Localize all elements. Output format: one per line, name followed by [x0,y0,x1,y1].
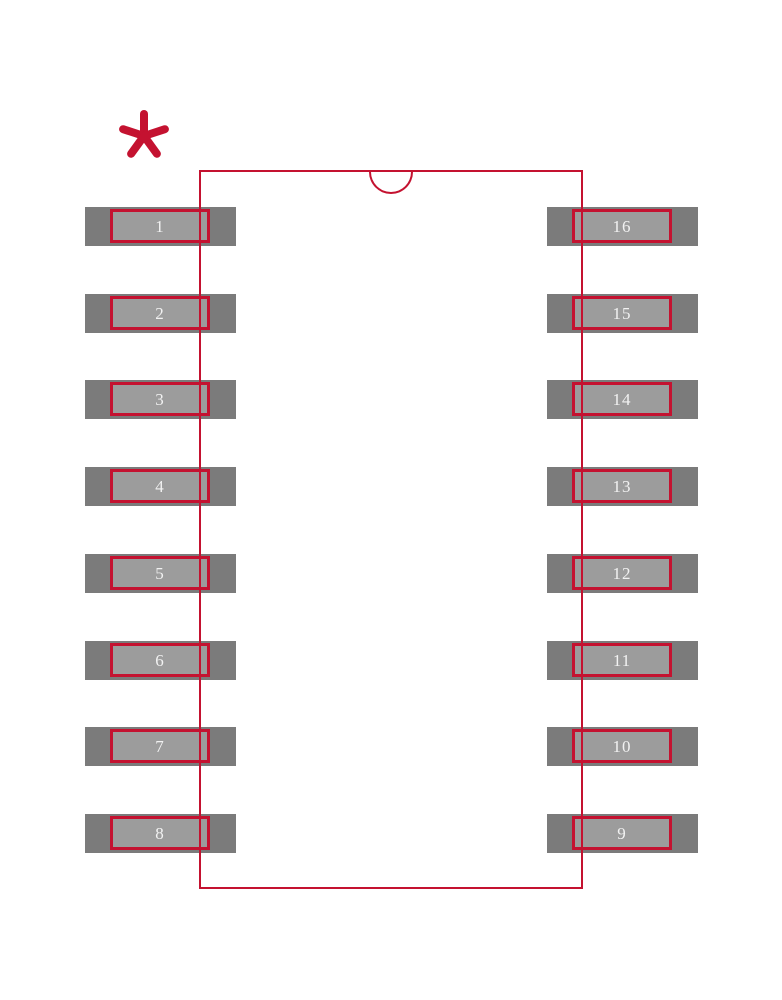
pin-outline-7: 7 [110,729,210,763]
pad-7: 7 [85,727,236,766]
pin-outline-9: 9 [572,816,672,850]
pad-14: 14 [547,380,698,419]
pin-number-11: 11 [613,652,631,669]
pin1-notch [369,172,413,194]
pin-outline-14: 14 [572,382,672,416]
pin-outline-2: 2 [110,296,210,330]
pin-outline-1: 1 [110,209,210,243]
pin-outline-3: 3 [110,382,210,416]
pin-number-4: 4 [155,478,165,495]
pin-outline-5: 5 [110,556,210,590]
footprint-diagram: 1 2 3 4 5 6 7 8 16 [0,0,782,1000]
pad-3: 3 [85,380,236,419]
pad-5: 5 [85,554,236,593]
pad-6: 6 [85,641,236,680]
pad-11: 11 [547,641,698,680]
pin-number-16: 16 [613,218,632,235]
pin-outline-11: 11 [572,643,672,677]
pin-outline-13: 13 [572,469,672,503]
pin-outline-10: 10 [572,729,672,763]
pad-15: 15 [547,294,698,333]
pad-12: 12 [547,554,698,593]
pin-number-8: 8 [155,825,165,842]
pin-number-1: 1 [155,218,165,235]
pin-outline-4: 4 [110,469,210,503]
pad-2: 2 [85,294,236,333]
pin-outline-16: 16 [572,209,672,243]
pad-1: 1 [85,207,236,246]
pad-9: 9 [547,814,698,853]
pad-10: 10 [547,727,698,766]
package-body-outline [199,170,583,889]
pin-number-12: 12 [613,565,632,582]
pad-16: 16 [547,207,698,246]
pin-number-7: 7 [155,738,165,755]
pin-number-13: 13 [613,478,632,495]
pin-number-5: 5 [155,565,165,582]
pin-number-15: 15 [613,305,632,322]
pin-outline-12: 12 [572,556,672,590]
pin-outline-6: 6 [110,643,210,677]
pin-number-14: 14 [613,391,632,408]
pin-outline-8: 8 [110,816,210,850]
pin-outline-15: 15 [572,296,672,330]
pad-4: 4 [85,467,236,506]
pin-number-9: 9 [617,825,627,842]
pin-number-6: 6 [155,652,165,669]
pad-8: 8 [85,814,236,853]
pin1-asterisk-icon [118,110,170,162]
pad-13: 13 [547,467,698,506]
pin-number-2: 2 [155,305,165,322]
pin-number-10: 10 [613,738,632,755]
pin-number-3: 3 [155,391,165,408]
